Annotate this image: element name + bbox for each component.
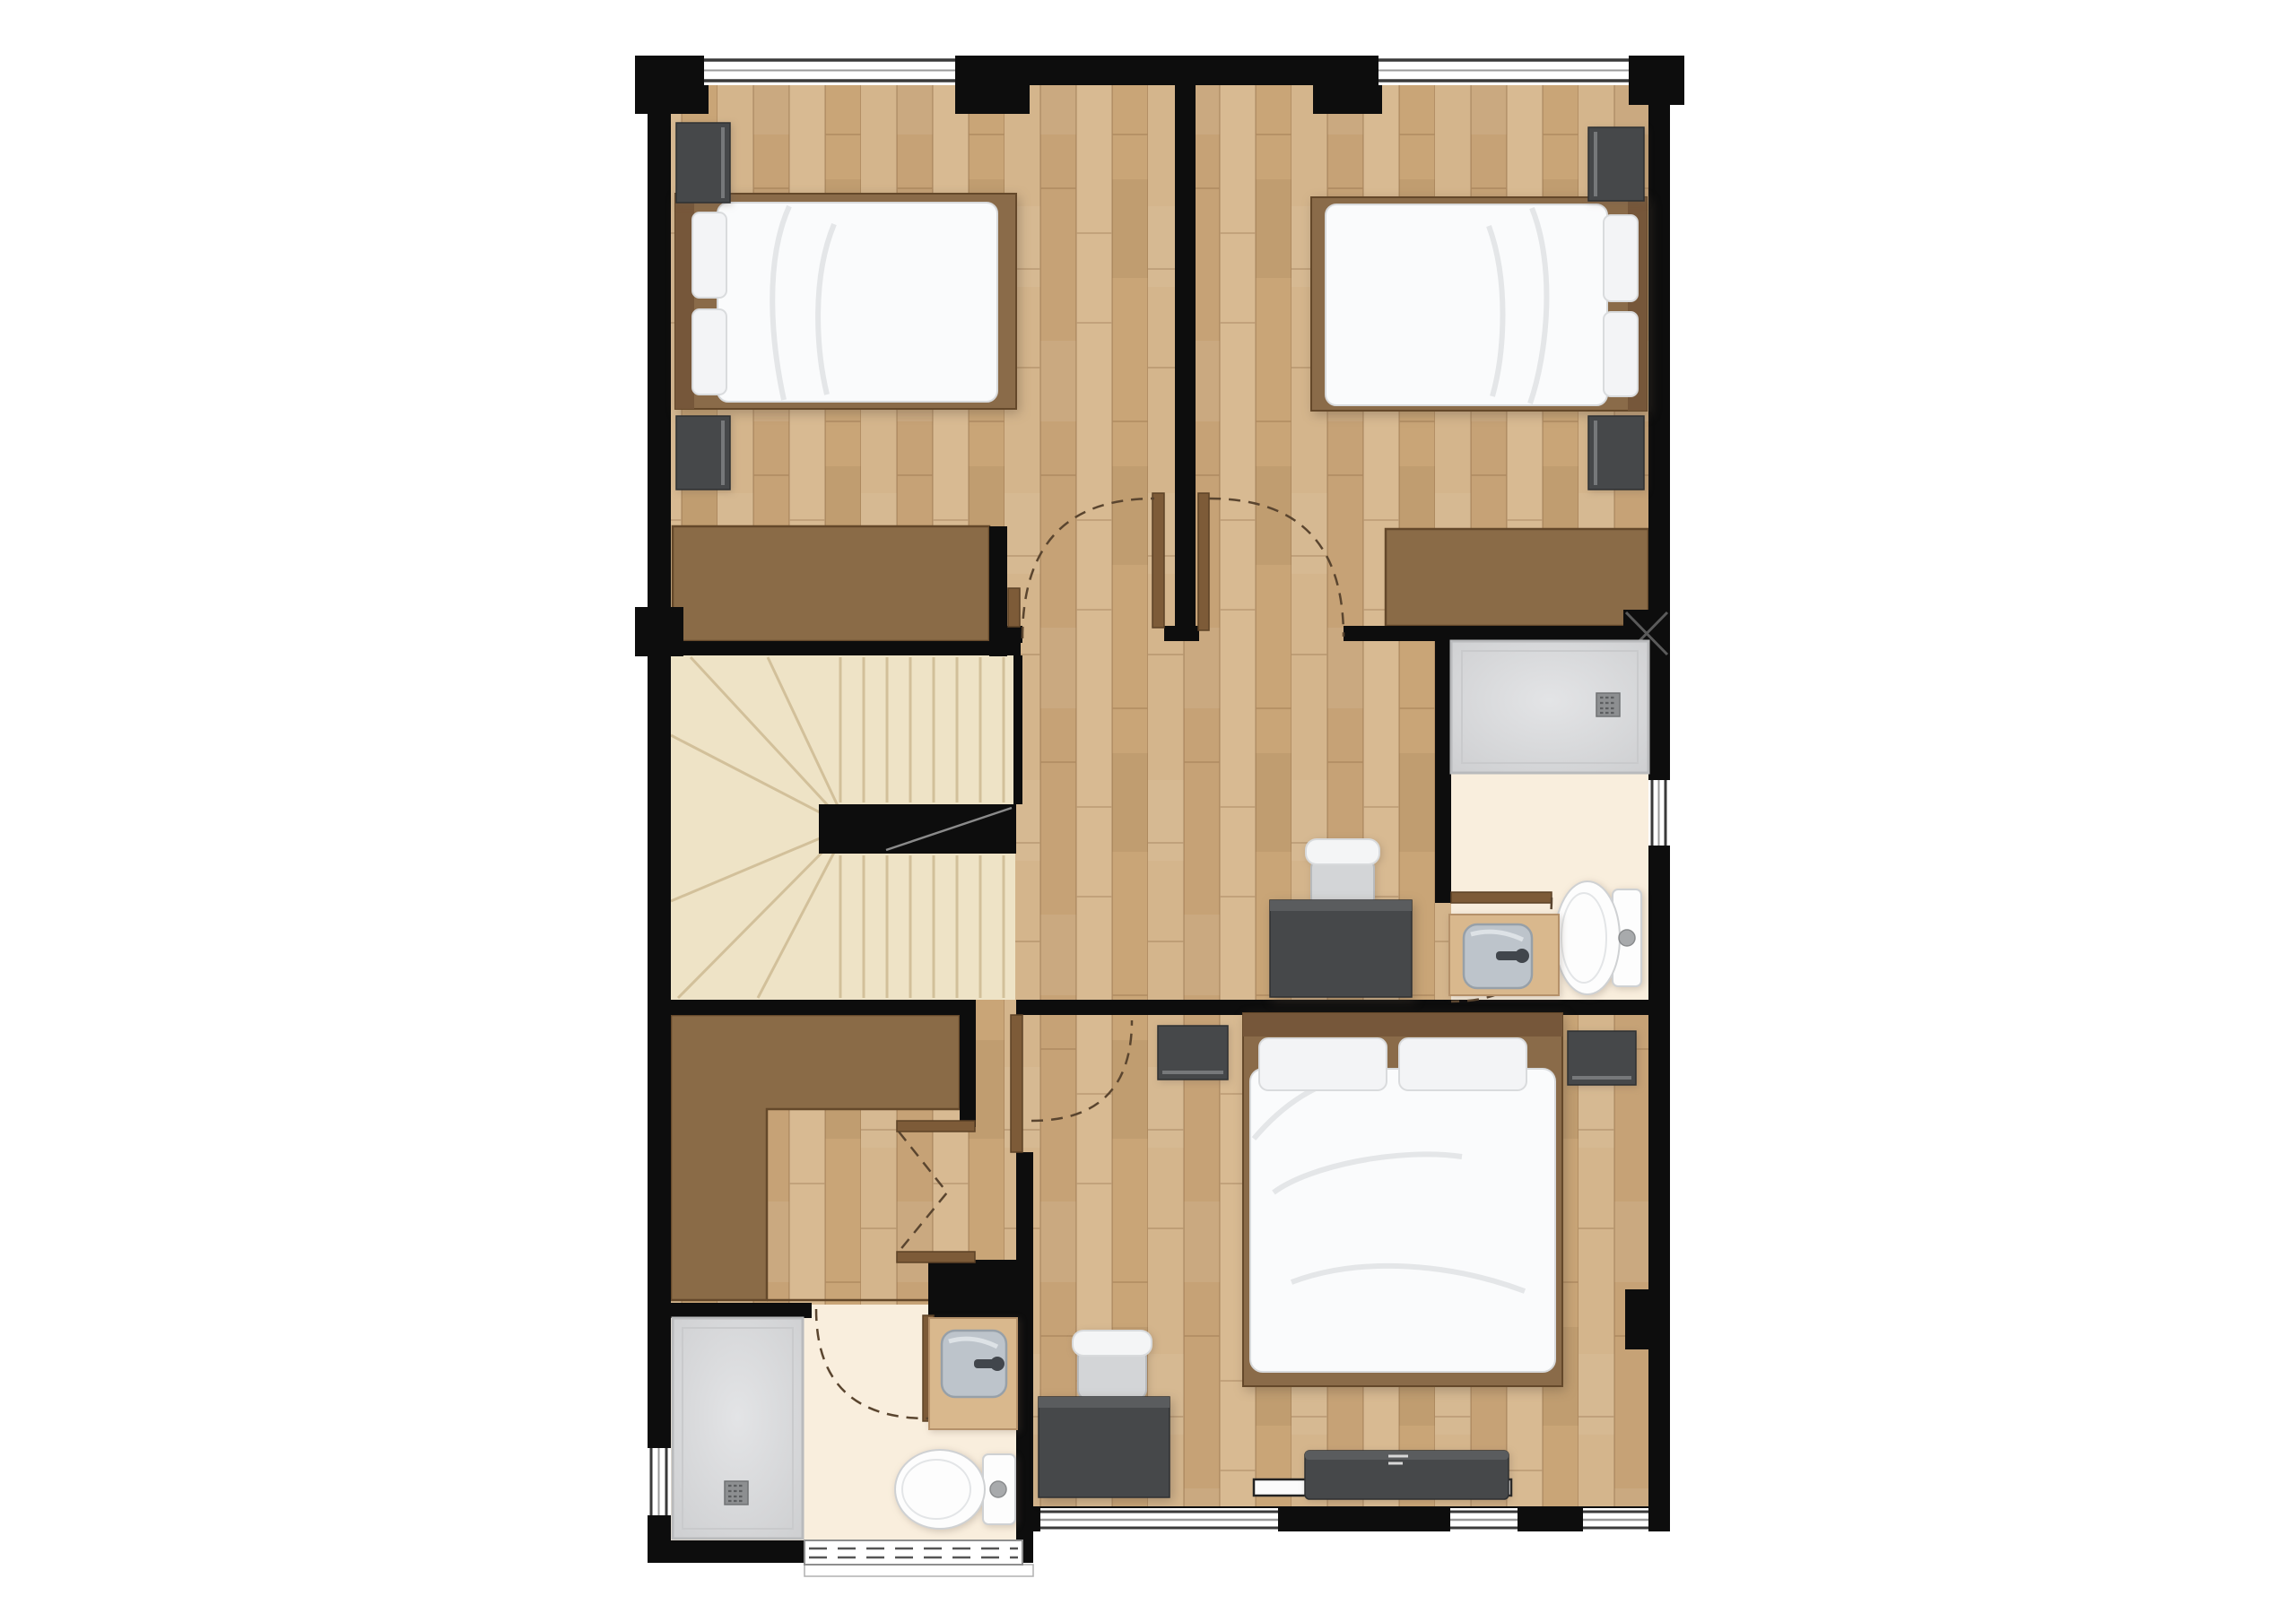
bed-bedroom1 (675, 194, 1016, 409)
ensuite-shower (1451, 641, 1648, 773)
window-master-bottom-left (1040, 1508, 1278, 1531)
duvet (1326, 204, 1607, 405)
bedroom1-wardrobe (673, 526, 989, 641)
duvet (1250, 1069, 1555, 1372)
shower-drain (1596, 693, 1620, 716)
bathroom2-toilet (895, 1450, 1015, 1529)
pillow (1604, 215, 1638, 301)
pillow (1259, 1038, 1387, 1090)
window-bathroom2-louvre (804, 1540, 1033, 1576)
window-bedroom2-top (1378, 56, 1629, 85)
window-master-bottom-right (1583, 1508, 1648, 1531)
bifold-jamb-bottom (897, 1252, 975, 1262)
bathroom2-shower (673, 1318, 803, 1539)
toilet-bowl (1555, 881, 1620, 994)
duvet (717, 203, 997, 402)
ensuite-sink-vanity (1449, 915, 1559, 995)
pillow (1604, 312, 1638, 396)
floor-plan-svg (0, 0, 2296, 1622)
window-bathroom2-left (648, 1448, 671, 1515)
toilet-flush-button (990, 1481, 1006, 1497)
chair-back (1073, 1331, 1152, 1356)
bedroom2-door-panel (1198, 493, 1209, 630)
master-bed (1243, 1013, 1562, 1386)
pillow (692, 309, 726, 395)
tv-media-box (1305, 1451, 1509, 1499)
bed-bedroom2 (1311, 197, 1647, 411)
headboard (1243, 1013, 1562, 1037)
ensuite-toilet (1555, 881, 1641, 994)
floor-plan-canvas (0, 0, 2296, 1622)
window-glass (804, 1540, 1022, 1565)
bedroom2-wardrobe (1386, 529, 1648, 626)
toilet-flush-button (1619, 930, 1635, 946)
master-desk-chair (1073, 1331, 1152, 1399)
stair-landing-rail (819, 804, 1016, 854)
window-ensuite-right (1648, 780, 1670, 846)
hall-desk-chair (1306, 839, 1379, 907)
ensuite-door-panel (1451, 892, 1552, 903)
headboard (675, 194, 694, 409)
master-door-panel (1011, 1015, 1022, 1152)
chair-back (1306, 839, 1379, 864)
hall-desk (1270, 900, 1412, 997)
shower-tray (673, 1318, 803, 1539)
bathroom2-sink-vanity (929, 1318, 1017, 1429)
window-master-bottom-mid (1450, 1508, 1518, 1531)
pillow (1399, 1038, 1526, 1090)
window-sill (804, 1565, 1033, 1576)
bedroom1-door-jamb (1008, 588, 1020, 627)
bedroom1-door-panel (1152, 493, 1164, 628)
pillow (692, 213, 726, 298)
desk-top-edge (1039, 1397, 1170, 1408)
desk-top-edge (1270, 900, 1412, 911)
master-desk (1039, 1397, 1170, 1497)
window-bedroom1-top (704, 56, 955, 85)
bifold-jamb-top (897, 1121, 975, 1132)
shower-drain (725, 1481, 748, 1505)
